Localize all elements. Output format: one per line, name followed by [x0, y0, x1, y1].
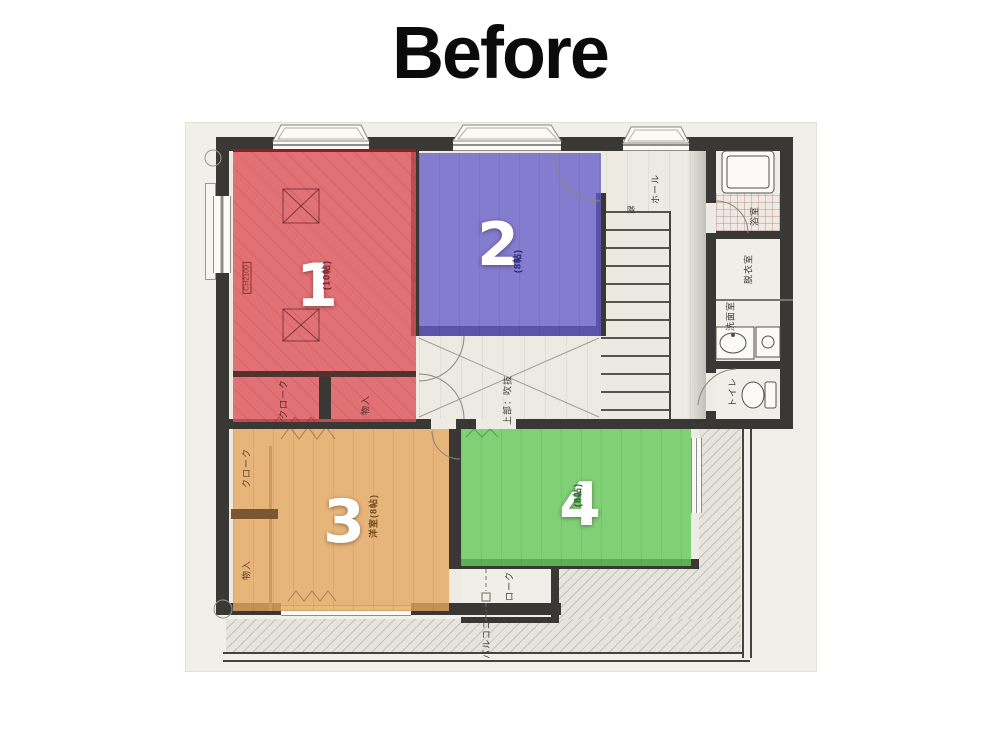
- closet-bottom-label: クローク: [503, 571, 516, 611]
- dressing-room-label: 脱衣室: [742, 254, 755, 284]
- room-4-size-label: (8帖): [571, 483, 584, 507]
- plan-circle-symbol: [205, 150, 221, 166]
- toilet-label: トイレ: [726, 377, 739, 407]
- storage-left-label: 物入: [240, 560, 253, 580]
- closet-left-label: クローク: [240, 448, 253, 488]
- stairs-label: 階: [627, 205, 635, 216]
- bathtub: [722, 151, 774, 193]
- balcony-label: バルコニー: [480, 609, 493, 659]
- void-above-label: 上部：吹抜: [501, 375, 514, 425]
- closet-red-label: クローク: [277, 379, 290, 419]
- screenshot-canvas: Before: [0, 0, 1000, 729]
- room-2-size-label: (8帖): [511, 249, 524, 273]
- sink: [716, 327, 780, 359]
- room-1-size-label: (10帖): [320, 260, 333, 290]
- zigzag-marks: [271, 417, 498, 601]
- bath-label: 浴室: [748, 206, 761, 226]
- page-title: Before: [15, 10, 985, 95]
- hall-label: ホール: [649, 174, 662, 204]
- ceiling-height-label: CH2100: [243, 262, 252, 294]
- room-3-size-label: 洋室(8帖): [367, 494, 380, 538]
- washroom-label: 洗面室: [724, 301, 737, 331]
- toilet-fixture: [742, 382, 776, 408]
- storage-red-label: 物入: [359, 395, 372, 415]
- door-arcs: [419, 155, 748, 459]
- plan-circle-symbol: [214, 600, 232, 618]
- balcony-door-symbol: [482, 593, 490, 601]
- floor-plan: 1 2 3 4 (10帖) (8帖) 洋室(8帖) (8帖) ホール 階 浴室 …: [185, 122, 817, 672]
- column-box-symbol: [283, 189, 319, 341]
